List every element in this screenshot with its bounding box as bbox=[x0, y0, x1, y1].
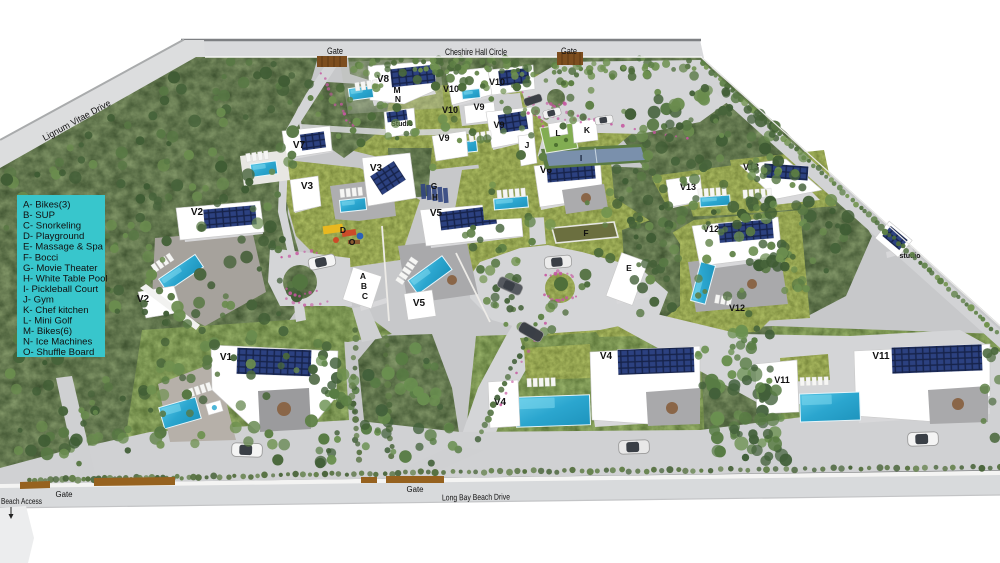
svg-text:H: H bbox=[432, 192, 438, 202]
svg-text:I- Pickleball Court: I- Pickleball Court bbox=[23, 284, 99, 295]
svg-text:G- Movie Theater: G- Movie Theater bbox=[23, 263, 98, 274]
svg-text:I: I bbox=[580, 153, 582, 163]
svg-text:Gate: Gate bbox=[561, 46, 577, 56]
svg-text:V12: V12 bbox=[729, 303, 745, 313]
svg-text:Gate: Gate bbox=[327, 46, 343, 56]
svg-text:O: O bbox=[349, 237, 356, 247]
svg-text:V3: V3 bbox=[370, 163, 383, 174]
svg-text:D: D bbox=[340, 225, 346, 235]
svg-text:G: G bbox=[431, 181, 438, 191]
svg-text:V7: V7 bbox=[293, 140, 306, 151]
svg-text:F- Bocci: F- Bocci bbox=[23, 252, 58, 263]
svg-text:Beach Access: Beach Access bbox=[1, 497, 42, 506]
svg-text:C: C bbox=[362, 291, 368, 301]
svg-text:Long Bay Beach Drive: Long Bay Beach Drive bbox=[442, 492, 510, 503]
svg-text:J- Gym: J- Gym bbox=[23, 295, 54, 306]
svg-text:V9: V9 bbox=[438, 133, 449, 143]
svg-text:K- Chef kitchen: K- Chef kitchen bbox=[23, 305, 89, 316]
svg-text:V2: V2 bbox=[191, 207, 204, 218]
svg-text:Gate: Gate bbox=[407, 485, 425, 494]
svg-text:V3: V3 bbox=[301, 181, 314, 192]
svg-text:V10: V10 bbox=[442, 105, 458, 115]
svg-text:L: L bbox=[555, 128, 560, 138]
svg-text:C- Snorkeling: C- Snorkeling bbox=[23, 221, 81, 232]
svg-text:V5: V5 bbox=[430, 208, 443, 219]
svg-text:M- Bikes(6): M- Bikes(6) bbox=[23, 326, 72, 337]
svg-text:V11: V11 bbox=[774, 375, 790, 385]
svg-text:Cheshire Hall Circle: Cheshire Hall Circle bbox=[445, 47, 507, 58]
svg-text:B- SUP: B- SUP bbox=[23, 210, 55, 221]
svg-text:K: K bbox=[584, 125, 591, 135]
svg-text:A- Bikes(3): A- Bikes(3) bbox=[23, 200, 70, 211]
svg-text:V9: V9 bbox=[473, 102, 484, 112]
svg-text:N: N bbox=[395, 94, 401, 104]
svg-text:O- Shuffle Board: O- Shuffle Board bbox=[23, 347, 94, 358]
svg-text:E: E bbox=[626, 263, 632, 273]
svg-text:E- Massage & Spa: E- Massage & Spa bbox=[23, 242, 104, 253]
svg-text:H- White Table Pool: H- White Table Pool bbox=[23, 273, 108, 284]
svg-text:L- Mini Golf: L- Mini Golf bbox=[23, 316, 72, 327]
svg-text:D- Playground: D- Playground bbox=[23, 231, 84, 242]
svg-text:N- Ice Machines: N- Ice Machines bbox=[23, 337, 93, 348]
svg-text:J: J bbox=[525, 140, 530, 150]
svg-text:F: F bbox=[583, 228, 588, 238]
svg-text:B: B bbox=[361, 281, 367, 291]
svg-text:Gate: Gate bbox=[56, 490, 74, 499]
svg-text:V10: V10 bbox=[443, 84, 459, 94]
svg-text:A: A bbox=[360, 271, 366, 281]
svg-text:V11: V11 bbox=[872, 351, 890, 362]
svg-text:V4: V4 bbox=[600, 351, 613, 362]
svg-text:V5: V5 bbox=[413, 298, 426, 309]
svg-text:V10: V10 bbox=[489, 77, 505, 87]
